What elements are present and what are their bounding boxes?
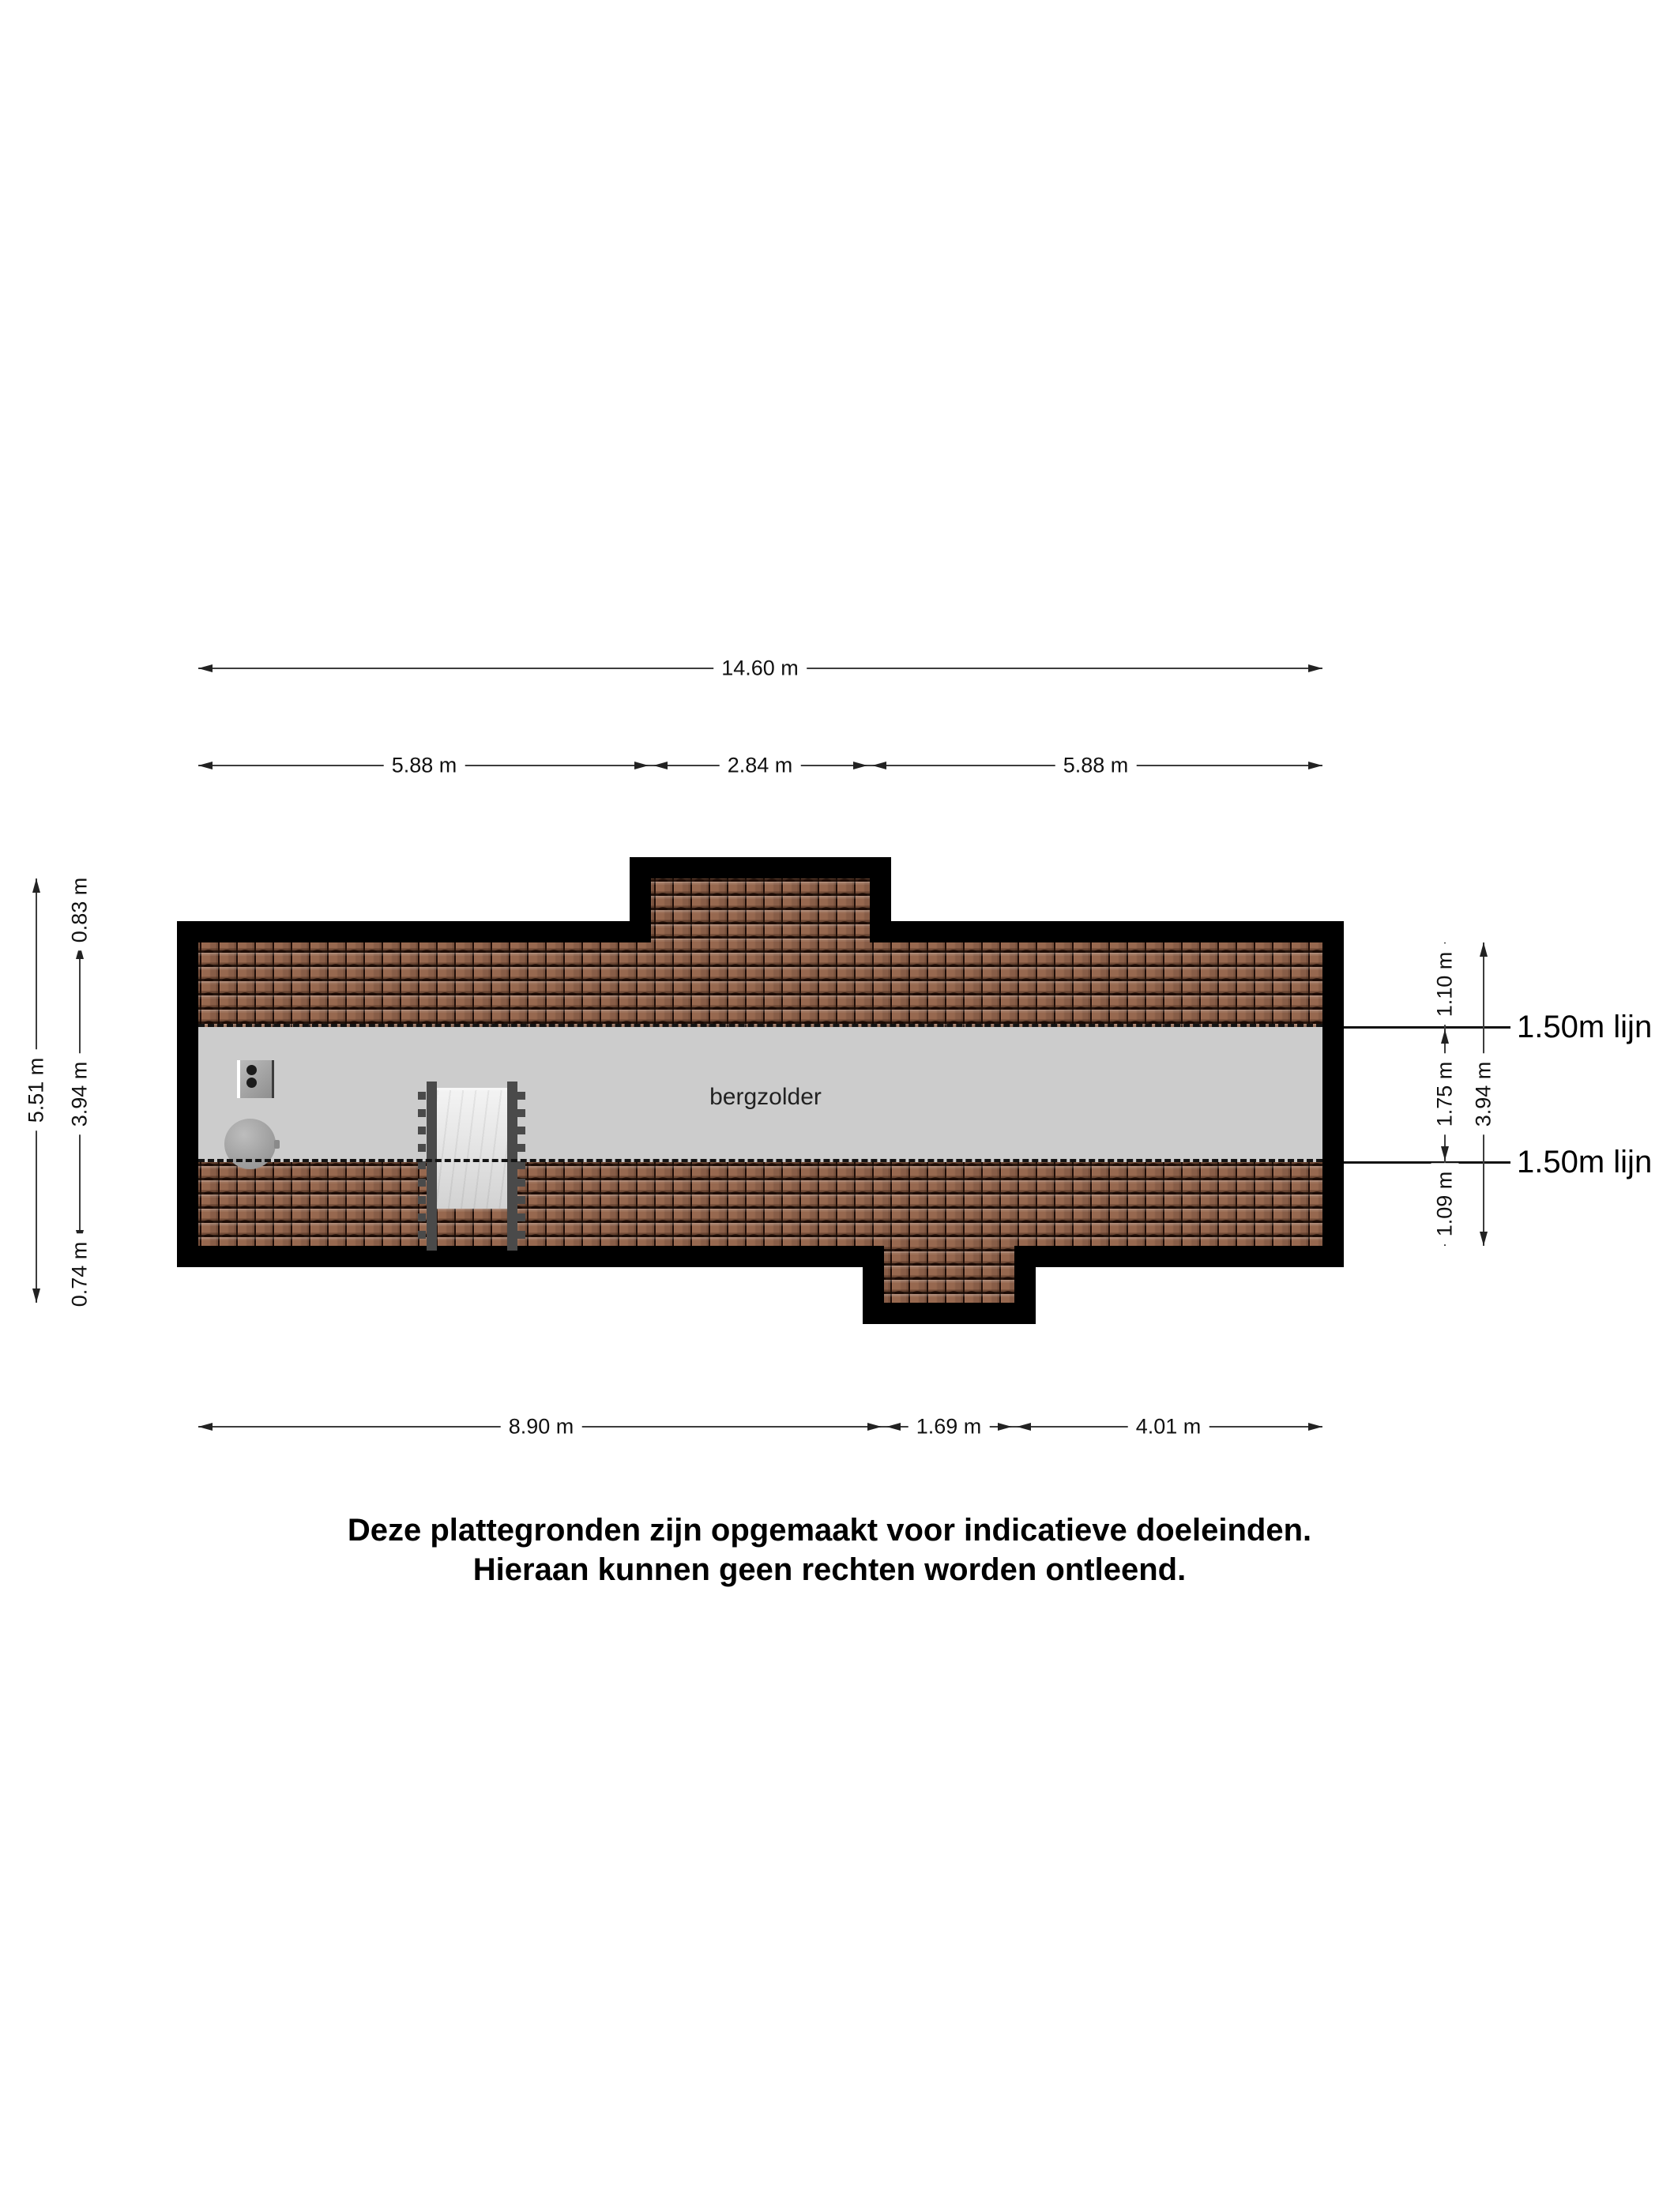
dim-label-left-seg3: 0.74 m	[66, 1234, 94, 1315]
dim-label-left-seg2: 3.94 m	[66, 1054, 94, 1135]
dim-arrow	[32, 878, 40, 893]
dim-arrow	[1480, 1232, 1488, 1246]
dim-label-bottom-seg2: 1.69 m	[908, 1413, 990, 1441]
stair-stringer-left	[427, 1082, 437, 1251]
ventilation-unit-knob-bottom	[246, 1078, 257, 1088]
dim-label-bottom-seg1: 8.90 m	[501, 1413, 582, 1441]
dim-arrow	[1441, 1146, 1449, 1161]
disclaimer-text: Deze plattegronden zijn opgemaakt voor i…	[0, 1510, 1659, 1589]
dim-arrow	[886, 1423, 901, 1431]
dim-arrow	[867, 1423, 882, 1431]
dim-arrow	[872, 762, 886, 769]
ventilation-unit-stripe	[237, 1060, 240, 1098]
disclaimer-line1: Deze plattegronden zijn opgemaakt voor i…	[0, 1510, 1659, 1550]
dim-label-left-seg1: 0.83 m	[66, 870, 94, 951]
dim-arrow	[1480, 942, 1488, 957]
roof-tiles-dormer	[651, 878, 870, 942]
dim-label-left-total: 5.51 m	[23, 1050, 51, 1131]
dim-label-top-seg2: 2.84 m	[720, 752, 801, 780]
height-line-bottom-dashed	[198, 1159, 1322, 1162]
roof-tiles-top-band	[198, 942, 1322, 1027]
dim-arrow	[198, 1423, 213, 1431]
floor-plan-page: bergzolder 14.60 m 5.88 m 2.84 m 5.88 m …	[0, 0, 1659, 2212]
dim-arrow	[1017, 1423, 1031, 1431]
dim-label-top-seg3: 5.88 m	[1055, 752, 1137, 780]
height-line-bottom-leader	[1344, 1161, 1510, 1164]
dim-arrow	[1308, 664, 1322, 672]
dim-arrow	[198, 762, 213, 769]
dim-arrow	[853, 762, 867, 769]
roof-tiles-bottom-band	[198, 1162, 1322, 1246]
dim-label-right-seg3: 1.09 m	[1431, 1164, 1459, 1245]
dim-arrow	[653, 762, 668, 769]
stair-balusters-left	[418, 1092, 426, 1247]
disclaimer-line2: Hieraan kunnen geen rechten worden ontle…	[0, 1550, 1659, 1589]
dim-label-top-total: 14.60 m	[713, 655, 807, 683]
stair-stringer-right	[507, 1082, 517, 1251]
dim-label-bottom-seg3: 4.01 m	[1128, 1413, 1209, 1441]
dim-arrow	[1308, 762, 1322, 769]
dim-label-right-seg2: 1.75 m	[1431, 1054, 1459, 1135]
dim-arrow	[198, 664, 213, 672]
ventilation-unit	[237, 1060, 274, 1098]
dim-arrow	[998, 1423, 1012, 1431]
dim-label-right-seg1: 1.10 m	[1431, 944, 1459, 1025]
ventilation-unit-knob-top	[246, 1065, 257, 1075]
dim-label-right-total: 3.94 m	[1470, 1054, 1498, 1135]
height-line-top-leader	[1344, 1026, 1510, 1029]
dim-arrow	[634, 762, 649, 769]
dim-label-top-seg1: 5.88 m	[384, 752, 465, 780]
stair-treads	[437, 1088, 507, 1209]
height-line-bottom-label: 1.50m lijn	[1517, 1146, 1652, 1178]
stair-balusters-right	[517, 1092, 525, 1247]
dim-arrow	[32, 1288, 40, 1303]
dim-arrow	[1441, 1029, 1449, 1044]
height-line-top-label: 1.50m lijn	[1517, 1011, 1652, 1043]
dim-arrow	[1308, 1423, 1322, 1431]
height-line-top-dashed	[198, 1024, 1322, 1027]
roof-tiles-extension	[884, 1246, 1014, 1303]
room-label: bergzolder	[709, 1084, 822, 1111]
boiler-valve	[274, 1140, 280, 1149]
